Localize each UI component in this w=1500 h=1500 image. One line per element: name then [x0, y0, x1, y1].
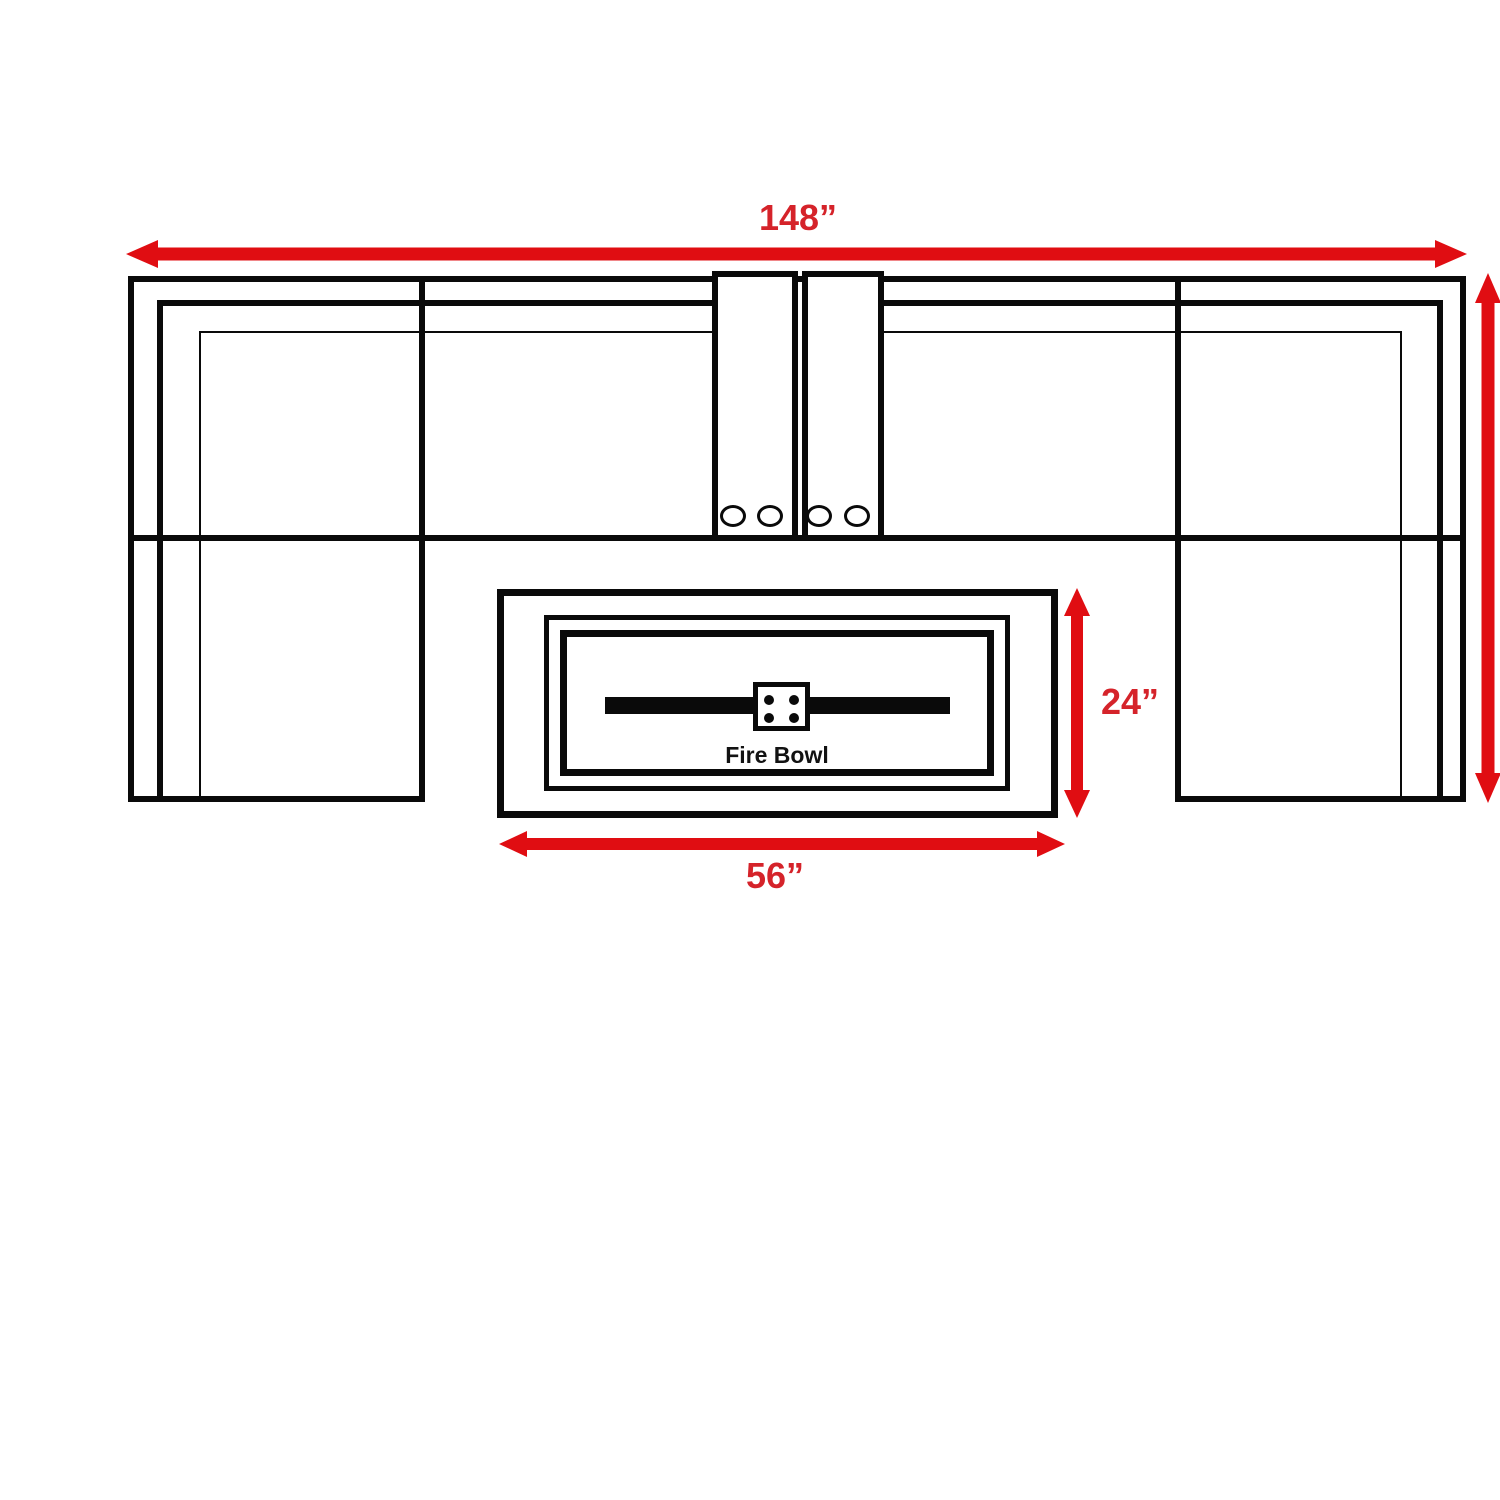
fire-table-depth-label: 24” [1088, 684, 1172, 720]
cup-holder [720, 505, 746, 527]
left-arm-outer-edge [128, 276, 134, 802]
sofa-back-inner-line-left [157, 300, 715, 306]
console-right [802, 271, 884, 541]
cup-holder [806, 505, 832, 527]
fire-table-width-label: 56” [705, 858, 845, 894]
cup-holder [757, 505, 783, 527]
cup-holder [844, 505, 870, 527]
arrow-head [499, 831, 527, 857]
left-arm-inner-line [157, 300, 163, 802]
fire-burner-control [753, 682, 810, 731]
left-arm-cushion-line [199, 331, 201, 802]
arrow-head [1475, 773, 1500, 803]
fire-bowl-label: Fire Bowl [560, 744, 994, 767]
burner-knob-dot [764, 695, 774, 705]
right-section-divider [1175, 276, 1181, 802]
arrow-head [1475, 273, 1500, 303]
arrow-head [126, 240, 158, 268]
burner-knob-dot [789, 695, 799, 705]
burner-knob-dot [764, 713, 774, 723]
overall-depth-arrow [1473, 271, 1500, 805]
sofa-back-cushion-line-right [881, 331, 1400, 333]
right-arm-outer-edge [1460, 276, 1466, 802]
arrow-head [1064, 588, 1090, 616]
right-section-front-edge [1175, 796, 1466, 802]
arrow-head [1064, 790, 1090, 818]
left-section-divider [419, 276, 425, 802]
arrow-head [1037, 831, 1065, 857]
console-left [712, 271, 798, 541]
right-arm-inner-line [1437, 300, 1443, 802]
overall-width-label: 148” [728, 200, 868, 236]
sofa-back-cushion-line-left [199, 331, 715, 333]
sofa-dimension-diagram: Fire Bowl 148” 24” 56” [0, 0, 1500, 1500]
burner-knob-dot [789, 713, 799, 723]
sofa-back-inner-line-right [881, 300, 1443, 306]
left-section-front-edge [128, 796, 425, 802]
right-arm-cushion-line [1400, 331, 1402, 802]
arrow-head [1435, 240, 1467, 268]
overall-width-arrow [124, 237, 1469, 271]
